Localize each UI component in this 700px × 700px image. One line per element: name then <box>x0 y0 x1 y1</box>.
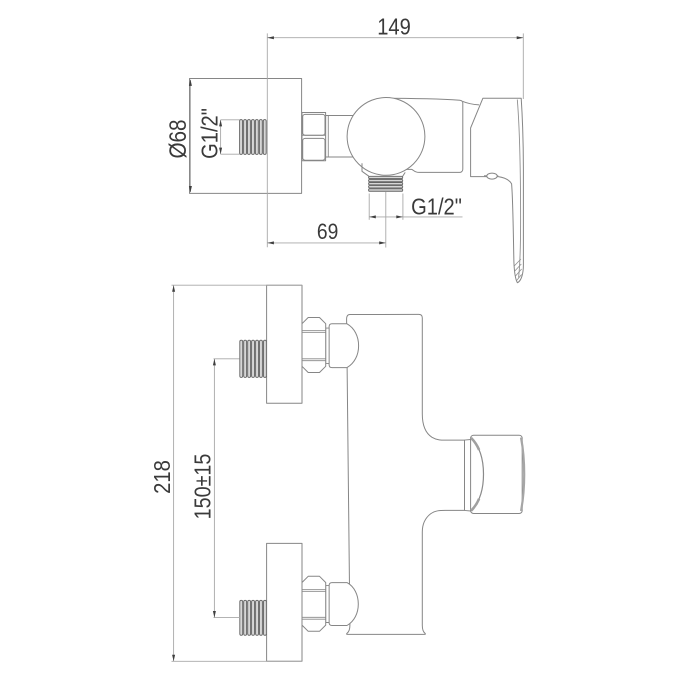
svg-text:218: 218 <box>148 460 175 494</box>
svg-text:69: 69 <box>317 220 338 244</box>
svg-text:150±15: 150±15 <box>190 454 216 520</box>
svg-text:Ø68: Ø68 <box>165 119 192 158</box>
svg-text:149: 149 <box>377 13 411 40</box>
svg-text:G1/2": G1/2" <box>196 108 223 159</box>
svg-text:G1/2": G1/2" <box>411 193 462 220</box>
